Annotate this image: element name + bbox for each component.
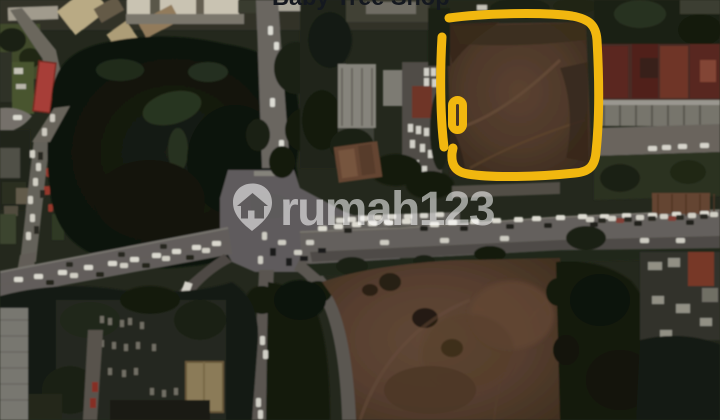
svg-text:Baby Tree Shop: Baby Tree Shop (272, 0, 450, 10)
svg-text:rumah123: rumah123 (280, 183, 494, 236)
